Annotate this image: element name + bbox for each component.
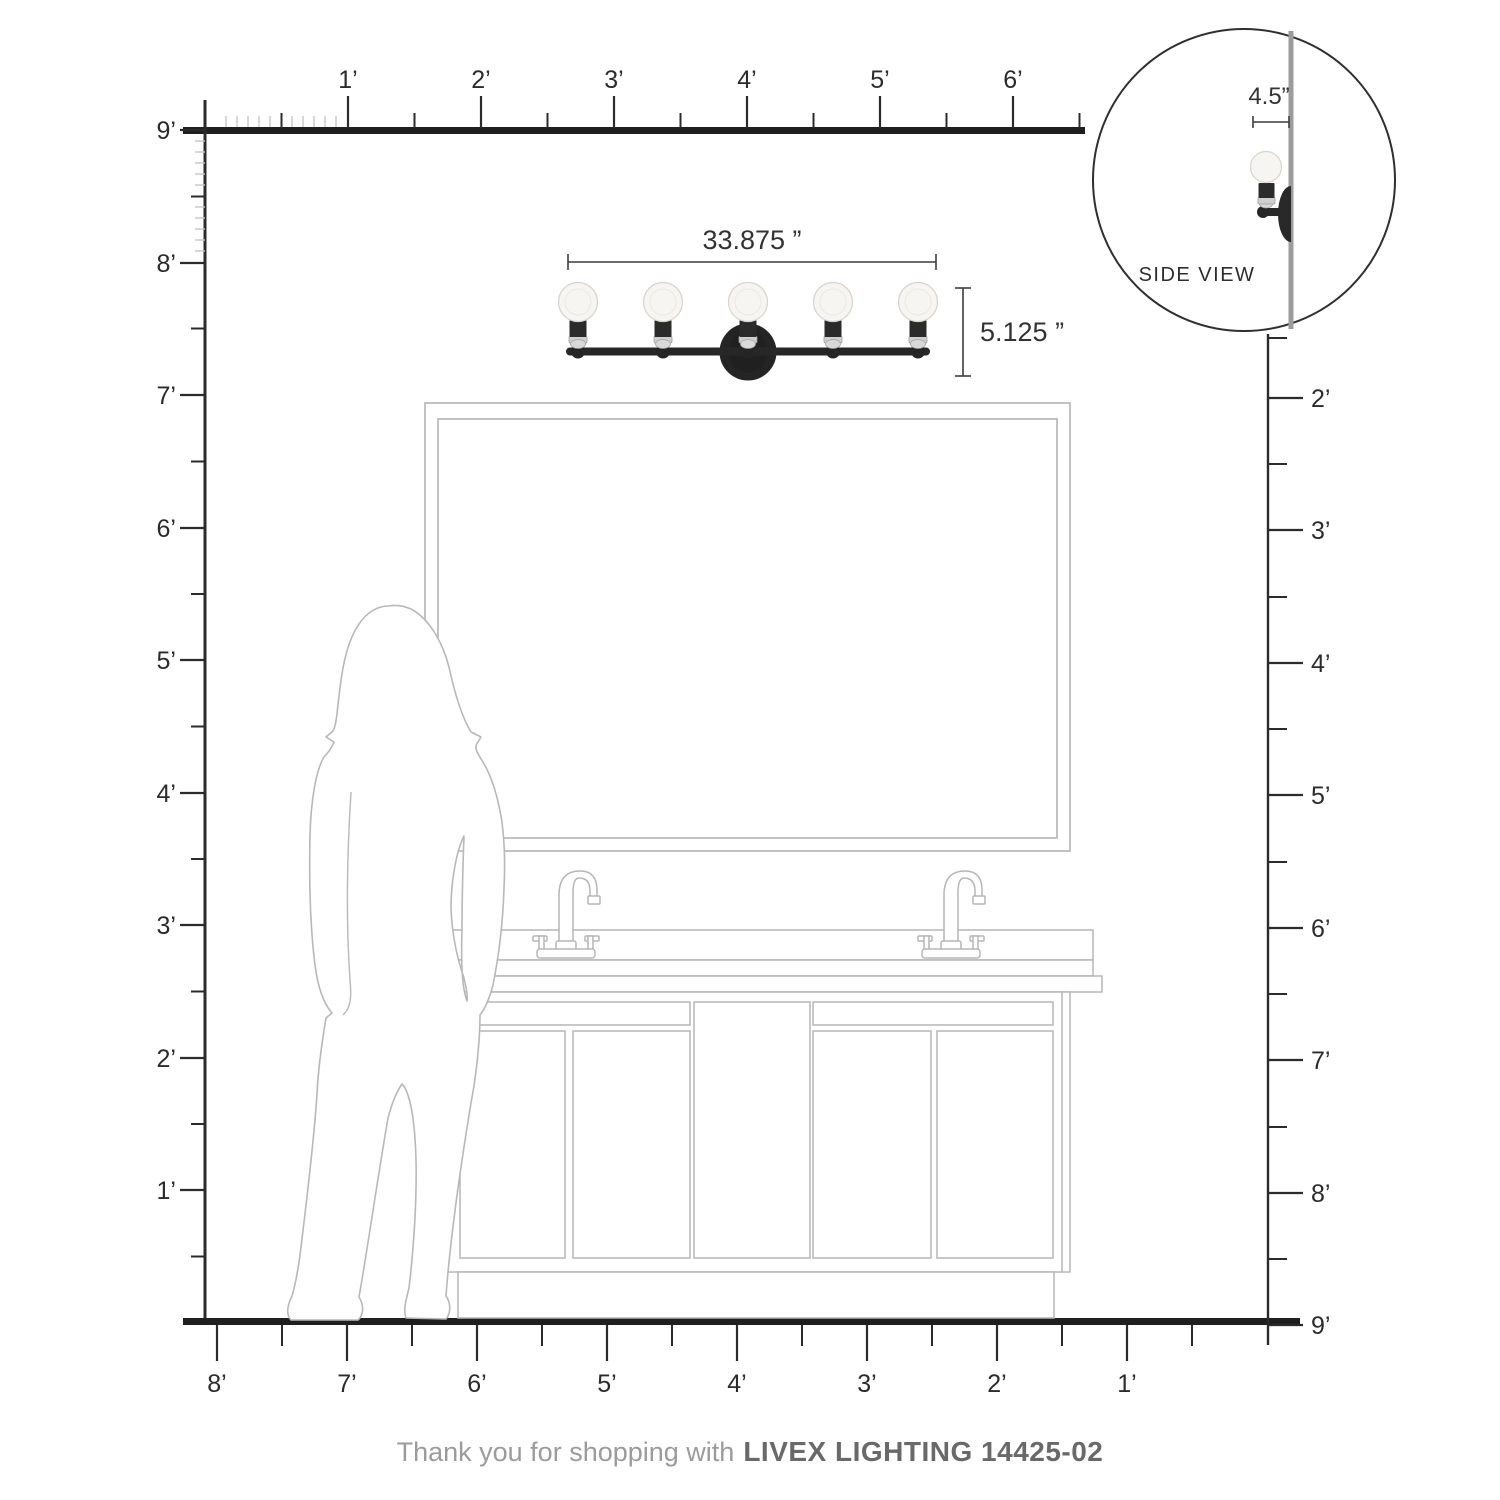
bulb-chrome-knob (741, 340, 756, 349)
center-panel (694, 1002, 810, 1258)
faucet-nozzle (588, 896, 600, 904)
cabinet-base (458, 1272, 1054, 1318)
drawer-panel-left (460, 1002, 690, 1025)
ruler-label: 8’ (207, 1370, 226, 1398)
counter-under-slab (413, 976, 1102, 992)
bulb-globe (814, 283, 853, 322)
ruler-label: 1’ (157, 1177, 176, 1205)
side-view-inset: 4.5” SIDE VIEW (1093, 29, 1395, 331)
ruler-label: 7’ (337, 1370, 356, 1398)
dimension-height (955, 288, 971, 376)
ruler-label: 9’ (1311, 1312, 1330, 1340)
bulb-socket (910, 320, 927, 337)
door-panel-2 (573, 1031, 690, 1258)
bulb-chrome-knob (826, 340, 841, 349)
ruler-label: 9’ (157, 117, 176, 145)
sconce-socket (1259, 183, 1275, 198)
ruler-label: 3’ (157, 912, 176, 940)
bulb-globe (899, 283, 938, 322)
ruler-label: 7’ (157, 382, 176, 410)
ruler-label: 5’ (1311, 782, 1330, 810)
ruler-label: 2’ (471, 66, 490, 94)
bulb-socket (825, 320, 842, 337)
ruler-label: 5’ (597, 1370, 616, 1398)
bulb-globe (559, 283, 598, 322)
mirror-inner-frame (438, 419, 1057, 838)
vanity-light-fixture (559, 283, 938, 381)
counter-deck (418, 930, 1093, 960)
footer: Thank you for shopping with LIVEX LIGHTI… (0, 1436, 1500, 1468)
ruler-label: 2’ (1311, 385, 1330, 413)
faucet (533, 871, 600, 958)
side-view-label: SIDE VIEW (1139, 264, 1256, 286)
door-panel-4 (937, 1031, 1053, 1258)
ruler-label: 5’ (870, 66, 889, 94)
footer-brand-model: LIVEX LIGHTING 14425-02 (743, 1436, 1103, 1468)
bulb-chrome-knob (656, 340, 671, 349)
faucet (918, 871, 985, 958)
left-wall-line (204, 100, 207, 1325)
ruler-label: 2’ (157, 1045, 176, 1073)
ruler-label: 4’ (157, 780, 176, 808)
ruler-label: 1’ (1117, 1370, 1136, 1398)
ruler-label: 1’ (338, 66, 357, 94)
faucet-base (537, 949, 595, 958)
ruler-label: 5’ (157, 647, 176, 675)
vanity (413, 871, 1102, 1318)
fixture-width-label: 33.875 ” (702, 225, 801, 255)
bulb-globe (729, 283, 768, 322)
bulb-chrome-knob (911, 340, 926, 349)
spec-sheet: 1’2’3’4’5’6’9’8’7’6’5’4’3’2’1’2’3’4’5’6’… (0, 0, 1500, 1500)
ruler-label: 6’ (1311, 915, 1330, 943)
sconce-bulb (1251, 152, 1282, 183)
bulb-socket (570, 320, 587, 337)
footer-text: Thank you for shopping with (397, 1437, 735, 1468)
ruler-label: 3’ (1311, 517, 1330, 545)
door-panel-3 (813, 1031, 931, 1258)
ceiling-line (183, 127, 1085, 134)
fixture-bulbs (559, 283, 938, 359)
bulb-socket (740, 320, 757, 337)
diagram: 1’2’3’4’5’6’9’8’7’6’5’4’3’2’1’2’3’4’5’6’… (0, 0, 1500, 1500)
fixture-depth-label: 4.5” (1248, 83, 1289, 110)
ruler-label: 3’ (857, 1370, 876, 1398)
fixture-height-label: 5.125 ” (980, 317, 1064, 347)
ruler-label: 7’ (1311, 1047, 1330, 1075)
bulb-globe (644, 283, 683, 322)
counter-slab (418, 960, 1093, 976)
ruler-label: 4’ (1311, 650, 1330, 678)
ruler-label: 6’ (1003, 66, 1022, 94)
drawer-panel-right (813, 1002, 1053, 1025)
ruler-label: 6’ (467, 1370, 486, 1398)
bulb-chrome-knob (571, 340, 586, 349)
ruler-label: 3’ (604, 66, 623, 94)
dimension-width (568, 254, 936, 270)
ruler-label: 8’ (157, 250, 176, 278)
ruler-label: 6’ (157, 515, 176, 543)
ruler-label: 4’ (727, 1370, 746, 1398)
mirror (425, 403, 1070, 851)
ruler-label: 2’ (987, 1370, 1006, 1398)
bulb-socket (655, 320, 672, 337)
sconce-chrome-ring (1258, 197, 1275, 204)
ruler-label: 8’ (1311, 1180, 1330, 1208)
ruler-label: 4’ (737, 66, 756, 94)
